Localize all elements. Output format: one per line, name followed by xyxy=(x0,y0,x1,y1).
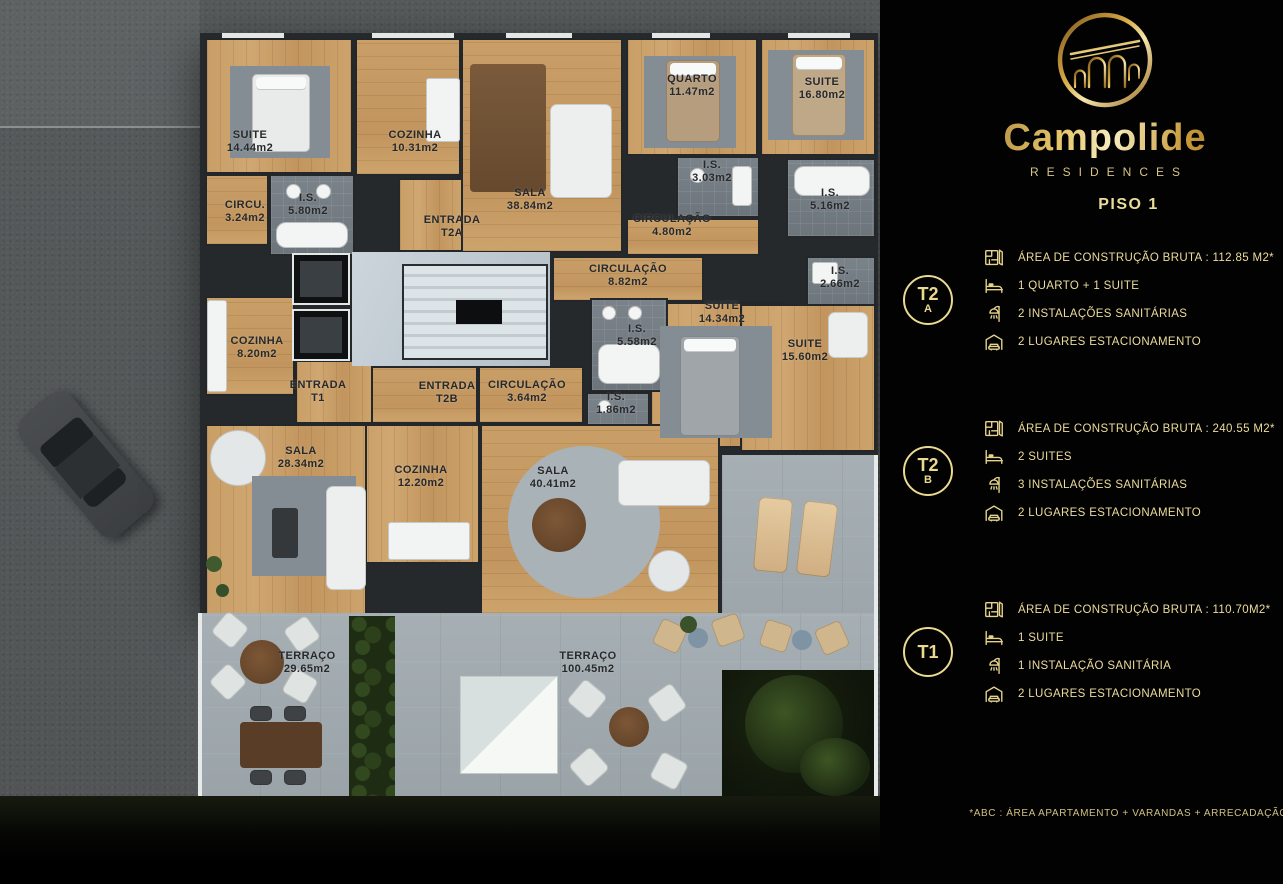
brand-subtitle: RESIDENCES xyxy=(927,165,1283,179)
room-label: SUITE16.80m2 xyxy=(799,76,845,102)
room-label: CIRCULAÇÃO3.64m2 xyxy=(488,379,566,405)
unit-badge-t1: T1 xyxy=(898,627,958,677)
room-label: I.S.1.86m2 xyxy=(596,391,636,417)
toilet xyxy=(602,306,616,320)
floor-title: PISO 1 xyxy=(927,196,1283,214)
palm-tree xyxy=(800,738,870,796)
floorplan-render: SUITE14.44m2 COZINHA10.31m2 CIRCU.3.24m2… xyxy=(0,0,880,884)
unit-t2a: T2A ÁREA DE CONSTRUÇÃO BRUTA : 112.85 M2… xyxy=(898,244,1274,356)
bottom-fade xyxy=(0,796,880,884)
room-label: SUITE14.44m2 xyxy=(227,129,273,155)
spec-bedrooms: 1 QUARTO + 1 SUITE xyxy=(983,272,1274,300)
terrace-chair xyxy=(284,706,306,721)
armchair xyxy=(828,312,868,358)
pillow xyxy=(256,77,306,90)
room-label: I.S.5.58m2 xyxy=(617,323,657,349)
terrace-chair xyxy=(284,770,306,785)
room-label: COZINHA12.20m2 xyxy=(395,464,448,490)
room-label: CIRCULAÇÃO8.82m2 xyxy=(589,263,667,289)
pillow xyxy=(796,57,842,70)
coffee-table xyxy=(272,508,298,558)
badge-bottom: B xyxy=(924,475,932,486)
badge-top: T1 xyxy=(917,643,938,661)
bed-icon xyxy=(983,627,1005,649)
pergola-umbrella xyxy=(460,676,558,774)
room-label: COZINHA8.20m2 xyxy=(231,335,284,361)
pillow xyxy=(684,339,736,352)
shower-icon xyxy=(983,655,1005,677)
terrace-dining-table xyxy=(240,722,322,768)
spec-bathrooms: 3 INSTALAÇÕES SANITÁRIAS xyxy=(983,471,1275,499)
armchair xyxy=(648,550,690,592)
room-label: SALA38.84m2 xyxy=(507,187,553,213)
room-label: ENTRADAT2A xyxy=(424,214,481,240)
badge-top: T2 xyxy=(917,285,938,303)
shower-tray xyxy=(732,166,752,206)
unit-t1: T1 ÁREA DE CONSTRUÇÃO BRUTA : 110.70M2* … xyxy=(898,596,1270,708)
dining-table xyxy=(470,64,546,192)
spec-bathrooms: 2 INSTALAÇÕES SANITÁRIAS xyxy=(983,300,1274,328)
bed-icon xyxy=(983,275,1005,297)
unit-t2b: T2B ÁREA DE CONSTRUÇÃO BRUTA : 240.55 M2… xyxy=(898,415,1275,527)
info-panel: Campolide RESIDENCES PISO 1 T2A ÁREA DE … xyxy=(880,0,1283,884)
bathtub xyxy=(598,344,660,384)
elevator-cab xyxy=(300,261,342,297)
sofa xyxy=(326,486,366,590)
bidet xyxy=(628,306,642,320)
sidewalk xyxy=(0,0,200,128)
terrace-chair xyxy=(250,706,272,721)
potted-plant xyxy=(216,584,229,597)
floorplan-icon xyxy=(983,599,1005,621)
room-label: CIRCULAÇÃO4.80m2 xyxy=(633,213,711,239)
bed-icon xyxy=(983,446,1005,468)
spec-parking: 2 LUGARES ESTACIONAMENTO xyxy=(983,328,1274,356)
elevator-shaft xyxy=(292,309,350,361)
campolide-logo-icon xyxy=(1055,10,1155,110)
shower-icon xyxy=(983,303,1005,325)
elevator-shaft xyxy=(292,253,350,305)
terrace-chair xyxy=(250,770,272,785)
badge-bottom: A xyxy=(924,304,932,315)
room-label: SALA40.41m2 xyxy=(530,465,576,491)
side-table xyxy=(792,630,812,650)
bed xyxy=(680,336,740,436)
badge-top: T2 xyxy=(917,456,938,474)
spec-bedrooms: 2 SUITES xyxy=(983,443,1275,471)
terrace-round-table xyxy=(240,640,284,684)
room-label: SUITE14.34m2 xyxy=(699,300,745,326)
room-label: CIRCU.3.24m2 xyxy=(225,199,265,225)
unit-specs: ÁREA DE CONSTRUÇÃO BRUTA : 240.55 M2* 2 … xyxy=(983,415,1275,527)
terrace-wall-left xyxy=(198,613,202,800)
room-label: QUARTO11.47m2 xyxy=(667,73,717,99)
unit-badge-t2b: T2B xyxy=(898,446,958,496)
room-label: SALA28.34m2 xyxy=(278,445,324,471)
floorplan-icon xyxy=(983,418,1005,440)
unit-badge-t2a: T2A xyxy=(898,275,958,325)
room-label: I.S.5.80m2 xyxy=(288,192,328,218)
garage-icon xyxy=(983,683,1005,705)
hedge-strip xyxy=(349,616,395,798)
footnote: *ABC : ÁREA APARTAMENTO + VARANDAS + ARR… xyxy=(927,808,1283,819)
sun-lounger xyxy=(753,497,793,574)
spec-parking: 2 LUGARES ESTACIONAMENTO xyxy=(983,499,1275,527)
room-label: I.S.3.03m2 xyxy=(692,159,732,185)
room-label: ENTRADAT1 xyxy=(290,379,347,405)
bathtub xyxy=(276,222,348,248)
spec-parking: 2 LUGARES ESTACIONAMENTO xyxy=(983,680,1270,708)
brochure-page: SUITE14.44m2 COZINHA10.31m2 CIRCU.3.24m2… xyxy=(0,0,1283,884)
stair-landing xyxy=(456,300,502,324)
shower-icon xyxy=(983,474,1005,496)
sofa xyxy=(618,460,710,506)
potted-plant xyxy=(206,556,222,572)
room-label: COZINHA10.31m2 xyxy=(389,129,442,155)
spec-area: ÁREA DE CONSTRUÇÃO BRUTA : 112.85 M2* xyxy=(983,244,1274,272)
room-label: TERRAÇO100.45m2 xyxy=(559,650,616,676)
unit-specs: ÁREA DE CONSTRUÇÃO BRUTA : 112.85 M2* 1 … xyxy=(983,244,1274,356)
spec-area: ÁREA DE CONSTRUÇÃO BRUTA : 240.55 M2* xyxy=(983,415,1275,443)
room-label: TERRAÇO29.65m2 xyxy=(278,650,335,676)
brand-name: Campolide xyxy=(927,117,1283,160)
kitchen-island xyxy=(388,522,470,560)
room-label: I.S.5.16m2 xyxy=(810,187,850,213)
unit-specs: ÁREA DE CONSTRUÇÃO BRUTA : 110.70M2* 1 S… xyxy=(983,596,1270,708)
terrace-wall-right xyxy=(874,455,878,800)
garage-icon xyxy=(983,502,1005,524)
sofa xyxy=(550,104,612,198)
brand-block: Campolide RESIDENCES xyxy=(927,0,1283,179)
room-label: SUITE15.60m2 xyxy=(782,338,828,364)
potted-plant xyxy=(680,616,697,633)
spec-bathrooms: 1 INSTALAÇÃO SANITÁRIA xyxy=(983,652,1270,680)
elevator-cab xyxy=(300,317,342,353)
terrace-round-table xyxy=(609,707,649,747)
spec-bedrooms: 1 SUITE xyxy=(983,624,1270,652)
round-dining-table xyxy=(532,498,586,552)
room-label: ENTRADAT2B xyxy=(419,380,476,406)
spec-area: ÁREA DE CONSTRUÇÃO BRUTA : 110.70M2* xyxy=(983,596,1270,624)
garage-icon xyxy=(983,331,1005,353)
kitchen-counter xyxy=(207,300,227,392)
floorplan-icon xyxy=(983,247,1005,269)
room-label: I.S.2.66m2 xyxy=(820,265,860,291)
